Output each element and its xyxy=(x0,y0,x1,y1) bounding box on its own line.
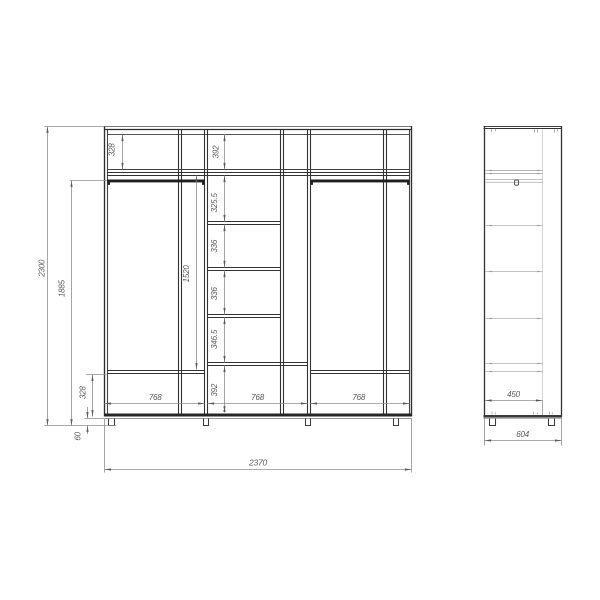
svg-text:346.5: 346.5 xyxy=(210,329,219,349)
svg-text:392: 392 xyxy=(211,145,220,158)
svg-text:336: 336 xyxy=(210,239,219,252)
svg-text:604: 604 xyxy=(516,430,529,439)
svg-text:1885: 1885 xyxy=(58,279,67,297)
svg-text:336: 336 xyxy=(210,286,219,299)
svg-text:392: 392 xyxy=(210,383,219,396)
svg-text:328: 328 xyxy=(108,143,117,156)
svg-text:2370: 2370 xyxy=(248,457,268,467)
svg-text:768: 768 xyxy=(251,393,264,402)
svg-text:450: 450 xyxy=(507,390,520,399)
svg-text:768: 768 xyxy=(149,393,162,402)
svg-text:1520: 1520 xyxy=(182,265,191,283)
svg-text:2300: 2300 xyxy=(38,259,47,278)
svg-text:328: 328 xyxy=(78,385,87,398)
svg-text:325.5: 325.5 xyxy=(210,193,219,213)
svg-text:60: 60 xyxy=(73,431,82,440)
svg-text:768: 768 xyxy=(352,393,365,402)
